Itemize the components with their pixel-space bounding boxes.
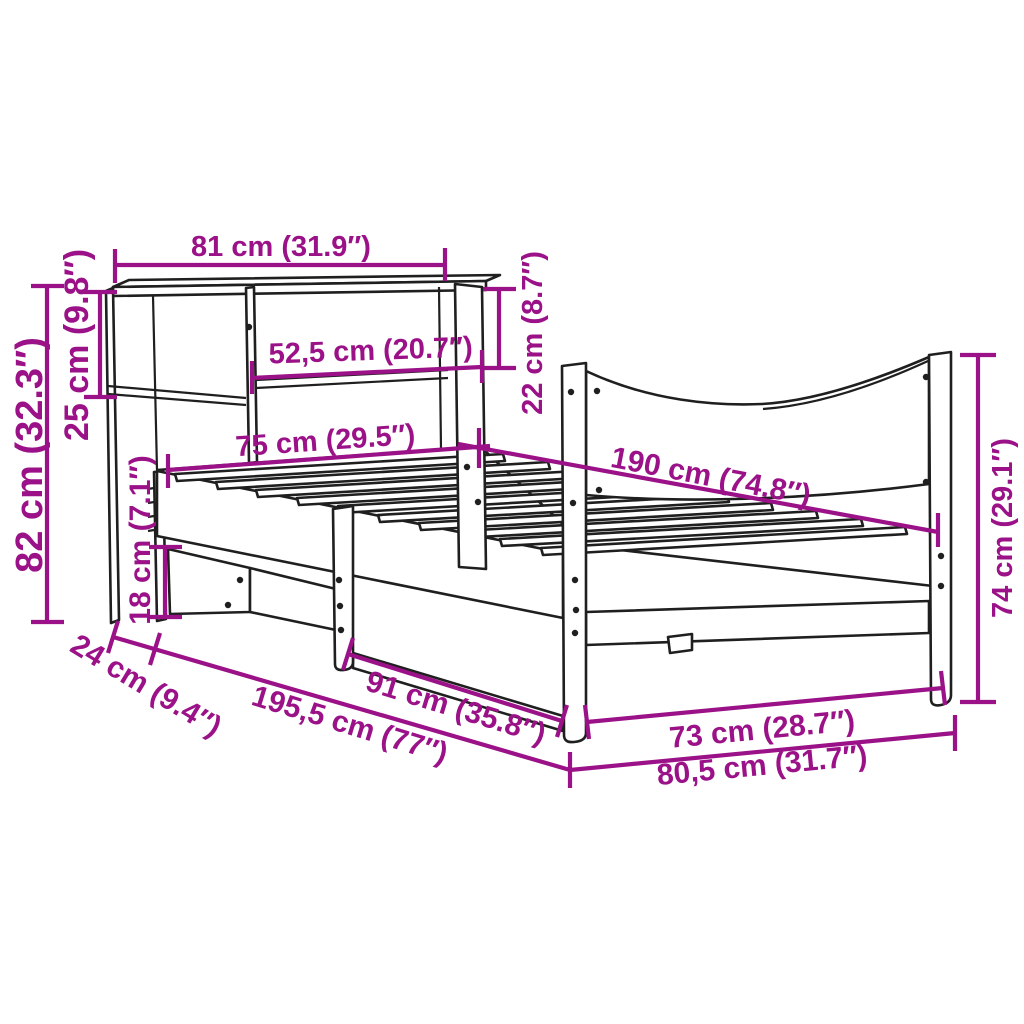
- dimension-diagram: 81 cm (31.9″) 52,5 cm (20.7″) 22 cm (8.7…: [0, 0, 1024, 1024]
- dim-footboard-height: 74 cm (29.1″): [960, 355, 1019, 702]
- headboard-right-post: [455, 284, 486, 569]
- dim-footboard-inner-width: 73 cm (28.7″): [585, 671, 945, 755]
- dim-label-shelf-opening-width: 52,5 cm (20.7″): [268, 331, 473, 370]
- left-shelf-edge: [108, 386, 246, 405]
- dim-label-headboard-total-height: 82 cm (32.3″): [9, 337, 51, 573]
- headboard-left-panel: [106, 288, 119, 623]
- dim-shelf-opening-width: 52,5 cm (20.7″): [252, 331, 482, 394]
- dim-label-shelf-opening-height: 22 cm (8.7″): [517, 251, 549, 415]
- dim-label-headboard-shelf-width: 81 cm (31.9″): [191, 231, 371, 263]
- dim-label-footboard-height: 74 cm (29.1″): [987, 438, 1019, 618]
- bed-dimension-svg: 81 cm (31.9″) 52,5 cm (20.7″) 22 cm (8.7…: [0, 0, 1024, 1024]
- headboard-left-inner-edge: [153, 296, 157, 470]
- dim-label-headboard-base-height: 18 cm (7.1″): [124, 455, 157, 624]
- dim-headboard-total-height: 82 cm (32.3″): [9, 286, 64, 622]
- base-cabinet-side: [250, 568, 336, 630]
- footboard-left-post: [562, 363, 586, 742]
- foot-low-rail: [586, 601, 929, 645]
- dim-label-bed-width: 75 cm (29.5″): [235, 419, 417, 463]
- dim-label-top-shelf-height: 25 cm (9.8″): [58, 249, 96, 441]
- center-bracket: [668, 634, 692, 653]
